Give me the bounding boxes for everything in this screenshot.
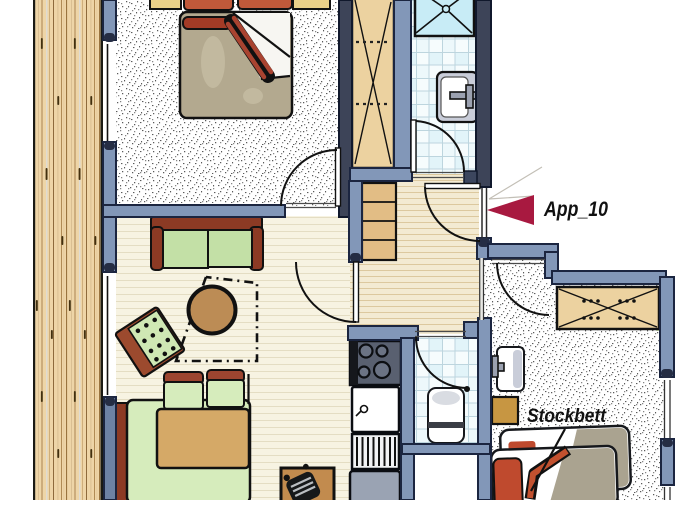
- svg-text:Stockbett: Stockbett: [527, 406, 607, 427]
- svg-text:App_10: App_10: [543, 198, 608, 221]
